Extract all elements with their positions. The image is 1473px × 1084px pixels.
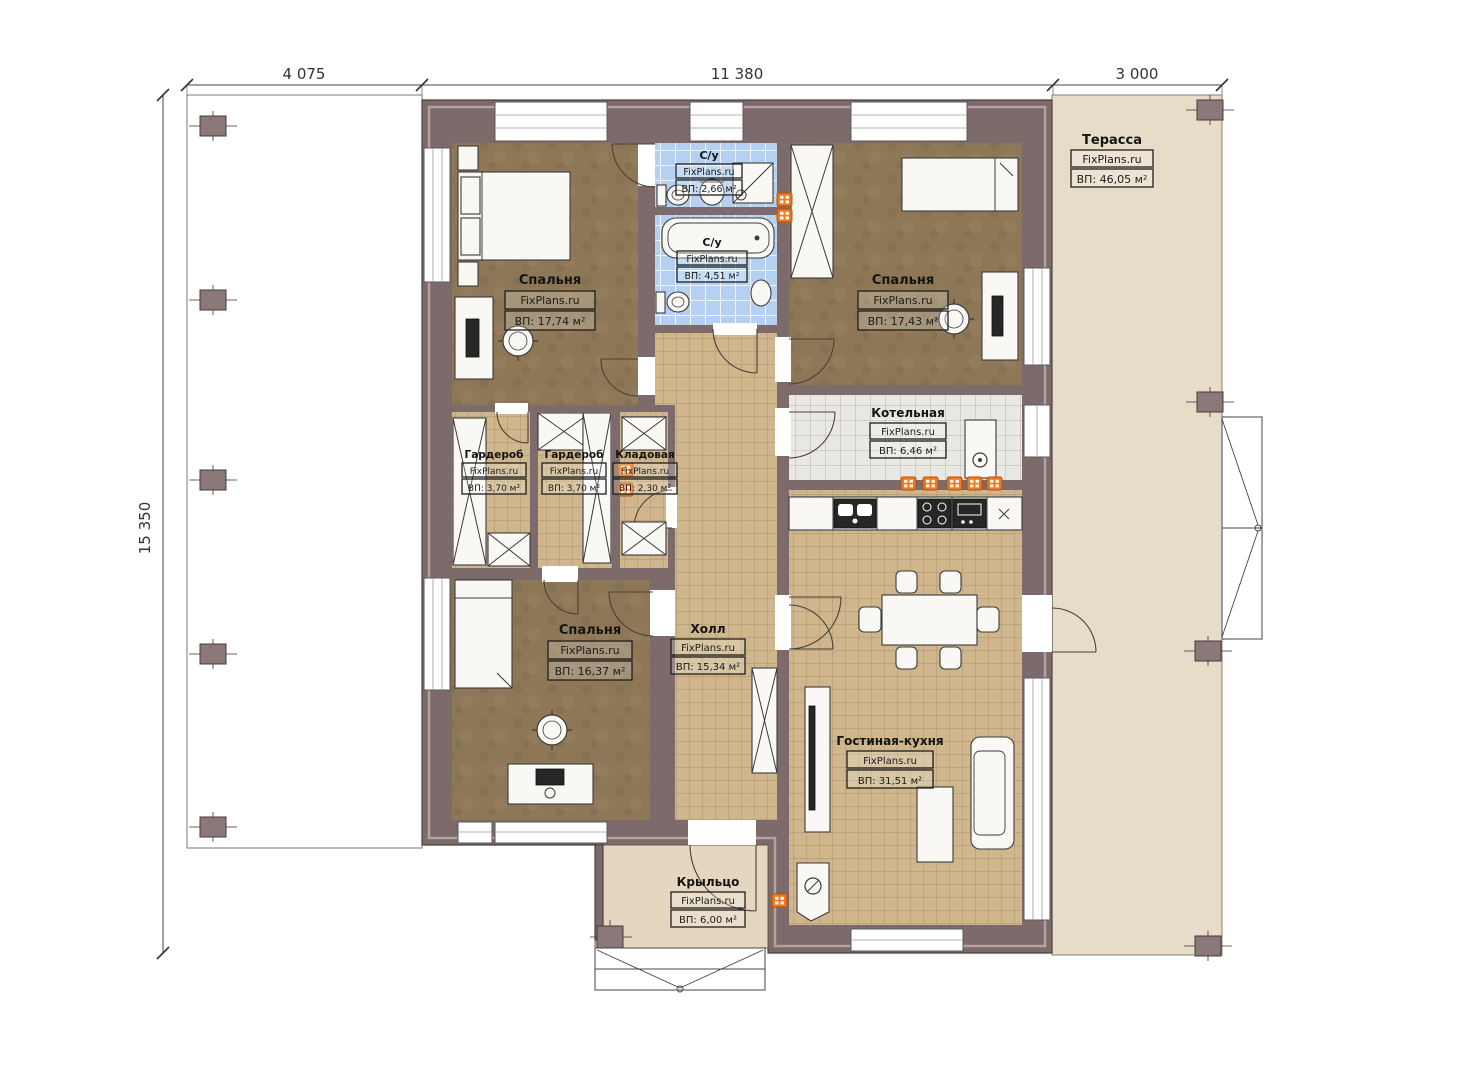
watermark-text: FixPlans.ru	[686, 254, 737, 265]
room-label-wardrobe-1: Гардероб FixPlans.ru ВП: 3,70 м²	[462, 449, 526, 494]
window	[851, 102, 967, 141]
window	[424, 578, 450, 690]
tv-stand	[805, 687, 830, 832]
room-name: С/у	[699, 149, 718, 162]
room-name: Спальня	[872, 273, 934, 288]
room-area: ВП: 31,51 м²	[858, 776, 922, 787]
double-bed	[458, 172, 570, 260]
dim-top-2: 11 380	[711, 65, 764, 83]
watermark-text: FixPlans.ru	[550, 467, 598, 477]
window	[495, 822, 607, 843]
stove	[918, 499, 951, 528]
watermark-text: FixPlans.ru	[560, 644, 619, 657]
room-name: Терасса	[1082, 133, 1142, 148]
wardrobe-unit	[538, 413, 590, 450]
room-label-storage: Кладовая FixPlans.ru ВП: 2,30 м²	[613, 449, 677, 494]
room-name: Крыльцо	[677, 875, 740, 889]
window	[424, 148, 450, 282]
room-label-terrace: Терасса FixPlans.ru ВП: 46,05 м²	[1071, 133, 1153, 187]
room-area: ВП: 6,46 м²	[879, 446, 937, 457]
window	[851, 929, 963, 951]
desk	[508, 764, 593, 804]
radiator-icon	[987, 477, 1002, 490]
room-label-porch: Крыльцо FixPlans.ru ВП: 6,00 м²	[671, 875, 745, 927]
wardrobe-unit	[488, 533, 530, 566]
room-name: Кладовая	[615, 449, 675, 461]
room-area: ВП: 16,37 м²	[555, 665, 626, 678]
carport-area	[187, 95, 422, 848]
dim-top-3: 3 000	[1116, 65, 1159, 83]
oven	[953, 499, 986, 528]
room-area: ВП: 4,51 м²	[684, 271, 739, 282]
dimension-left: 15 350	[136, 89, 169, 959]
room-area: ВП: 3,70 м²	[468, 484, 521, 494]
room-label-boiler: Котельная FixPlans.ru ВП: 6,46 м²	[870, 406, 946, 458]
radiator-icon	[947, 477, 962, 490]
watermark-text: FixPlans.ru	[520, 294, 579, 307]
floor-plan-canvas: 4 075 11 380 3 000 15 350	[0, 0, 1473, 1080]
watermark-text: FixPlans.ru	[470, 467, 518, 477]
radiator-icon	[777, 209, 792, 222]
window	[1024, 405, 1050, 457]
room-label-living: Гостиная-кухня FixPlans.ru ВП: 31,51 м²	[836, 734, 943, 788]
room-name: Гардероб	[465, 449, 524, 461]
terrace	[1052, 95, 1262, 961]
terrace-steps	[1222, 417, 1262, 639]
watermark-text: FixPlans.ru	[873, 294, 932, 307]
monitor	[466, 319, 479, 357]
dim-left: 15 350	[136, 502, 154, 555]
window	[495, 102, 607, 141]
floor-plan-svg: 4 075 11 380 3 000 15 350	[0, 0, 1473, 1080]
room-name: С/у	[702, 236, 721, 249]
room-area: ВП: 17,43 м²	[868, 315, 939, 328]
watermark-text: FixPlans.ru	[1082, 153, 1141, 166]
radiator-icon	[967, 477, 982, 490]
sofa	[971, 737, 1014, 849]
room-name: Котельная	[871, 406, 945, 420]
radiator-icon	[923, 477, 938, 490]
dim-top-1: 4 075	[283, 65, 326, 83]
coffee-table	[917, 787, 953, 862]
room-area: ВП: 46,05 м²	[1077, 173, 1148, 186]
boiler-unit	[965, 420, 996, 478]
single-bed	[455, 580, 512, 688]
window	[458, 822, 492, 843]
watermark-text: FixPlans.ru	[681, 896, 735, 907]
storage-shelf	[622, 522, 666, 555]
nightstand	[458, 262, 478, 286]
room-area: ВП: 15,34 м²	[676, 662, 740, 673]
nightstand	[458, 146, 478, 170]
watermark-text: FixPlans.ru	[681, 643, 735, 654]
room-name: Спальня	[519, 273, 581, 288]
watermark-text: FixPlans.ru	[621, 467, 669, 477]
porch-steps	[595, 948, 765, 992]
monitor	[992, 296, 1003, 336]
kitchen-sink	[834, 499, 876, 528]
room-area: ВП: 2,66 м²	[681, 184, 736, 195]
room-name: Холл	[690, 622, 725, 636]
radiator-icon	[772, 894, 787, 907]
entry-door-leaf	[797, 863, 829, 921]
window	[1024, 268, 1050, 365]
washbasin	[751, 280, 771, 306]
single-bed	[902, 158, 1018, 211]
kitchen-counter	[789, 497, 1022, 530]
room-area: ВП: 17,74 м²	[515, 315, 586, 328]
storage-shelf	[622, 417, 666, 450]
toilet	[656, 292, 689, 313]
room-name: Спальня	[559, 623, 621, 638]
room-area: ВП: 3,70 м²	[548, 484, 601, 494]
wardrobe-unit	[791, 145, 833, 278]
room-name: Гардероб	[545, 449, 604, 461]
window	[1024, 678, 1050, 920]
room-label-wardrobe-2: Гардероб FixPlans.ru ВП: 3,70 м²	[542, 449, 606, 494]
watermark-text: FixPlans.ru	[863, 756, 917, 767]
room-area: ВП: 6,00 м²	[679, 915, 737, 926]
hall-wardrobe	[752, 668, 777, 773]
room-label-bedroom-bl: Спальня FixPlans.ru ВП: 16,37 м²	[548, 623, 632, 680]
watermark-text: FixPlans.ru	[683, 167, 734, 178]
window	[690, 102, 743, 141]
watermark-text: FixPlans.ru	[881, 427, 935, 438]
radiator-icon	[901, 477, 916, 490]
room-area: ВП: 2,30 м²	[619, 484, 672, 494]
room-name: Гостиная-кухня	[836, 734, 943, 748]
radiator-icon	[777, 193, 792, 206]
